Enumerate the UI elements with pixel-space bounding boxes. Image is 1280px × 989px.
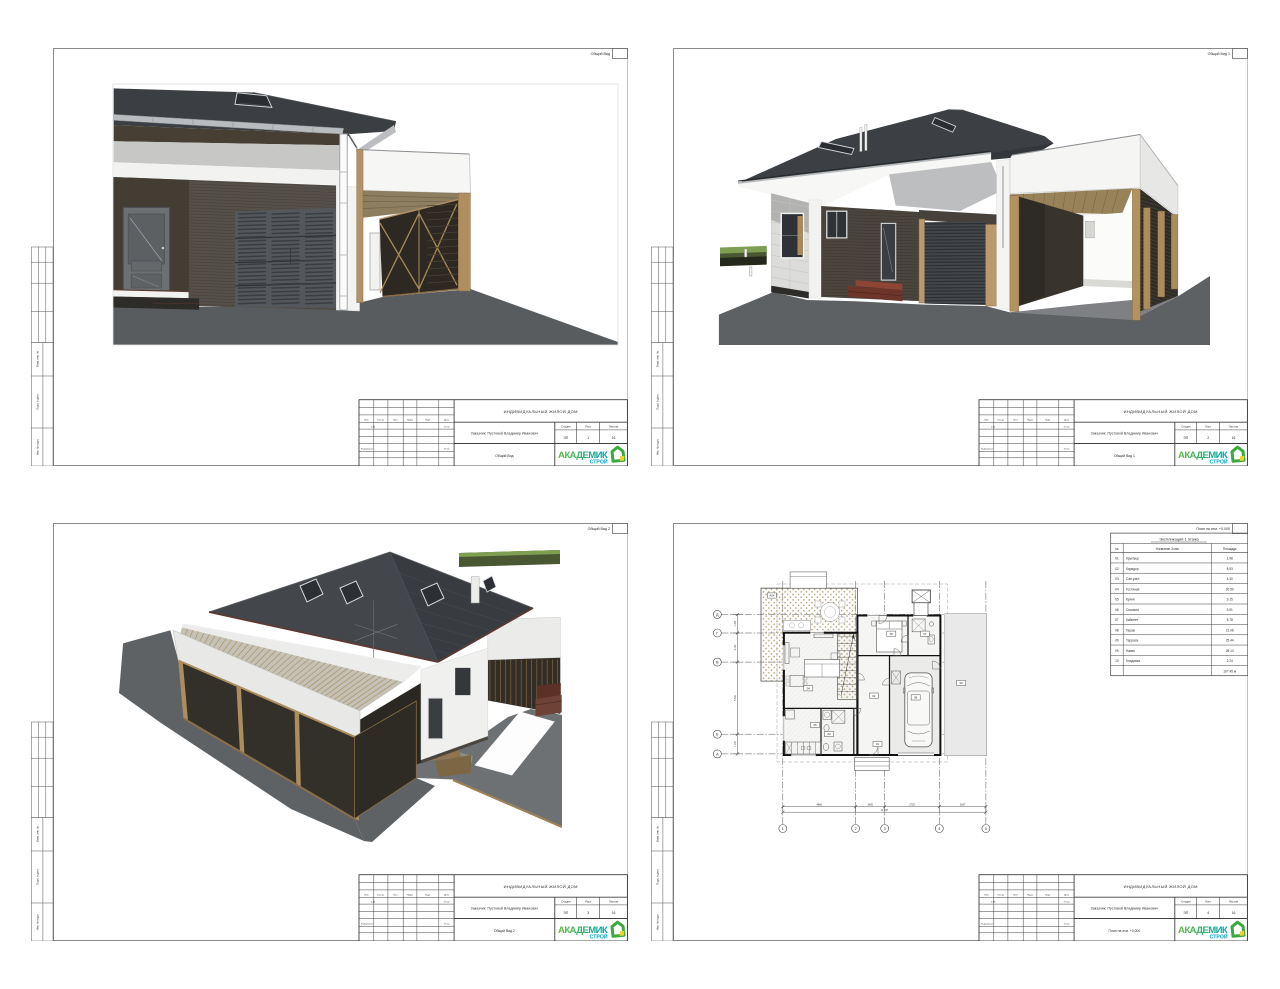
svg-text:Общий Вид 1: Общий Вид 1 [1114, 454, 1135, 458]
svg-text:Подп. и дата: Подп. и дата [656, 869, 660, 885]
svg-text:Изм: Изм [984, 895, 989, 897]
svg-text:Общий Вид 1: Общий Вид 1 [1208, 52, 1230, 56]
svg-text:9.15: 9.15 [1227, 598, 1233, 602]
svg-text:Подп. и дата: Подп. и дата [656, 394, 660, 410]
svg-text:27 мм: 27 мм [1064, 427, 1070, 429]
svg-text:Навес: Навес [1126, 649, 1136, 653]
svg-text:Подп.: Подп. [425, 895, 431, 897]
svg-text:27 мм: 27 мм [444, 448, 450, 450]
svg-text:СТРОЙ: СТРОЙ [1210, 932, 1228, 940]
svg-text:Общий Вид 2: Общий Вид 2 [588, 527, 610, 531]
svg-text:Заказчик: Пустовой Владимир Ив: Заказчик: Пустовой Владимир Иванович [1091, 907, 1159, 911]
svg-text:Название Зоны: Название Зоны [1156, 547, 1180, 551]
svg-text:16: 16 [612, 436, 616, 440]
svg-text:Взам. инв. №: Взам. инв. № [656, 351, 660, 367]
svg-text:Взам. инв. №: Взам. инв. № [36, 826, 40, 842]
svg-text:Крыльцо: Крыльцо [1126, 557, 1139, 561]
svg-text:Листов: Листов [609, 425, 619, 429]
svg-text:Подп. и дата: Подп. и дата [36, 869, 40, 885]
svg-text:Дата: Дата [1064, 420, 1070, 422]
svg-text:Лист: Лист [393, 420, 398, 422]
svg-text:СТРОЙ: СТРОЙ [1210, 457, 1228, 465]
svg-text:Общий Вид: Общий Вид [591, 52, 611, 56]
svg-text:27 мм: 27 мм [1064, 902, 1070, 904]
svg-text:Инв. № подл.: Инв. № подл. [656, 914, 660, 930]
svg-text:Инв. № подл.: Инв. № подл. [656, 439, 660, 455]
svg-text:09: 09 [1115, 649, 1119, 653]
svg-text:Стадия: Стадия [561, 425, 571, 429]
svg-text:21.06: 21.06 [1226, 628, 1234, 632]
svg-text:2.24: 2.24 [1227, 659, 1233, 663]
svg-text:Изм: Изм [364, 895, 369, 897]
svg-text:2725: 2725 [909, 804, 915, 807]
svg-text:Дата: Дата [1064, 895, 1070, 897]
svg-text:План на отм. +0.000: План на отм. +0.000 [1108, 929, 1140, 933]
svg-text:3: 3 [587, 911, 589, 915]
svg-text:03: 03 [827, 732, 831, 736]
svg-text:Стадия: Стадия [1181, 900, 1191, 904]
svg-text:5.78: 5.78 [1227, 618, 1233, 622]
svg-text:№док: №док [407, 894, 413, 897]
svg-text:4: 4 [1207, 911, 1209, 915]
svg-text:Гараж: Гараж [1126, 628, 1136, 632]
svg-text:ЭП: ЭП [563, 911, 568, 915]
svg-text:1.180: 1.180 [735, 620, 737, 626]
svg-text:ИНДИВИДУАЛЬНЫЙ ЖИЛОЙ ДОМ: ИНДИВИДУАЛЬНЫЙ ЖИЛОЙ ДОМ [1124, 409, 1198, 414]
svg-text:A04: A04 [769, 594, 774, 598]
svg-text:Инв. № подл.: Инв. № подл. [36, 914, 40, 930]
svg-text:16: 16 [1232, 436, 1236, 440]
svg-text:1.100: 1.100 [735, 740, 737, 746]
svg-text:Дата: Дата [444, 895, 450, 897]
svg-text:№док: №док [1027, 894, 1033, 897]
svg-text:Заказчик: Пустовой Владимир Ив: Заказчик: Пустовой Владимир Иванович [471, 907, 539, 911]
svg-text:3: 3 [884, 827, 886, 831]
svg-text:3167: 3167 [960, 804, 966, 807]
svg-text:Стадия: Стадия [1181, 425, 1191, 429]
svg-text:Взам. инв. №: Взам. инв. № [656, 826, 660, 842]
svg-text:04: 04 [807, 687, 811, 691]
svg-text:Кухня: Кухня [1126, 598, 1135, 602]
svg-text:ИНДИВИДУАЛЬНЫЙ ЖИЛОЙ ДОМ: ИНДИВИДУАЛЬНЫЙ ЖИЛОЙ ДОМ [1124, 884, 1198, 889]
svg-text:Коридор: Коридор [1126, 567, 1139, 571]
svg-text:28.13: 28.13 [1226, 649, 1234, 653]
svg-text:Лист: Лист [585, 425, 592, 429]
svg-text:Подп.: Подп. [1045, 895, 1051, 897]
svg-text:27 мм: 27 мм [444, 427, 450, 429]
svg-text:Кол.уч: Кол.уч [378, 895, 385, 897]
svg-text:План на отм. +0.000: План на отм. +0.000 [1196, 527, 1230, 531]
svg-text:03: 03 [1115, 577, 1119, 581]
svg-text:Лист: Лист [585, 900, 592, 904]
svg-text:Лист: Лист [393, 895, 398, 897]
svg-text:20.50: 20.50 [1226, 587, 1234, 591]
svg-text:ИНДИВИДУАЛЬНЫЙ ЖИЛОЙ ДОМ: ИНДИВИДУАЛЬНЫЙ ЖИЛОЙ ДОМ [504, 409, 578, 414]
svg-text:СТРОЙ: СТРОЙ [590, 932, 608, 940]
svg-text:06: 06 [1115, 608, 1119, 612]
svg-text:Стадия: Стадия [561, 900, 571, 904]
svg-text:07: 07 [923, 632, 927, 636]
svg-text:1405: 1405 [867, 804, 873, 807]
svg-text:9.91: 9.91 [1227, 608, 1233, 612]
svg-text:8.93: 8.93 [1227, 567, 1233, 571]
svg-text:Подп. и дата: Подп. и дата [36, 394, 40, 410]
svg-text:Лист: Лист [1205, 900, 1212, 904]
svg-text:ЭП: ЭП [1183, 436, 1188, 440]
svg-text:08: 08 [914, 696, 918, 700]
svg-text:Подп.: Подп. [1045, 420, 1051, 422]
svg-text:Кладовка: Кладовка [1126, 659, 1140, 663]
svg-text:Заказчик: Пустовой Владимир Ив: Заказчик: Пустовой Владимир Иванович [471, 432, 539, 436]
svg-text:Взам. инв. №: Взам. инв. № [36, 351, 40, 367]
svg-text:Кол.уч: Кол.уч [998, 420, 1005, 422]
svg-text:ИНДИВИДУАЛЬНЫЙ ЖИЛОЙ ДОМ: ИНДИВИДУАЛЬНЫЙ ЖИЛОЙ ДОМ [504, 884, 578, 889]
svg-text:25.44: 25.44 [1226, 639, 1234, 643]
svg-text:Подп.: Подп. [425, 420, 431, 422]
svg-text:Разработал: Разработал [981, 923, 994, 925]
svg-text:2.190: 2.190 [735, 644, 737, 650]
svg-text:ЭП: ЭП [1183, 911, 1188, 915]
svg-text:09: 09 [960, 681, 964, 685]
svg-text:Листов: Листов [1229, 425, 1239, 429]
svg-text:27 мм: 27 мм [444, 923, 450, 925]
svg-text:Площадь: Площадь [1223, 547, 1237, 551]
svg-text:Разработал: Разработал [361, 923, 374, 925]
svg-text:Терраса: Терраса [1126, 639, 1138, 643]
svg-text:107.45 м: 107.45 м [1223, 669, 1236, 673]
svg-text:Заказчик: Пустовой Владимир Ив: Заказчик: Пустовой Владимир Иванович [1091, 432, 1159, 436]
svg-text:07: 07 [1115, 618, 1119, 622]
svg-text:Листов: Листов [1229, 900, 1239, 904]
svg-text:1: 1 [587, 436, 589, 440]
svg-text:2: 2 [1207, 436, 1209, 440]
svg-text:10: 10 [1115, 659, 1119, 663]
svg-text:Сан.узел: Сан.узел [1126, 577, 1139, 581]
svg-text:1.98: 1.98 [1227, 557, 1233, 561]
svg-text:Г: Г [716, 631, 718, 635]
svg-text:01: 01 [1115, 557, 1119, 561]
svg-text:16: 16 [1232, 911, 1236, 915]
svg-text:5: 5 [985, 827, 987, 831]
svg-text:ЭП: ЭП [563, 436, 568, 440]
svg-text:Спальня: Спальня [1126, 608, 1139, 612]
svg-text:27 мм: 27 мм [444, 902, 450, 904]
svg-text:4.30: 4.30 [1227, 577, 1233, 581]
svg-text:Кол.уч: Кол.уч [378, 420, 385, 422]
svg-text:Экспликация 1 этажа: Экспликация 1 этажа [1159, 537, 1199, 542]
svg-text:08: 08 [1115, 628, 1119, 632]
svg-text:Инв. № подл.: Инв. № подл. [36, 439, 40, 455]
svg-text:02: 02 [872, 694, 876, 698]
svg-text:Изм: Изм [364, 420, 369, 422]
svg-text:Общий Вид 2: Общий Вид 2 [494, 929, 515, 933]
svg-text:16: 16 [612, 911, 616, 915]
svg-text:12 167: 12 167 [880, 809, 888, 812]
svg-text:Гостиная: Гостиная [1126, 587, 1140, 591]
svg-text:Лист: Лист [1205, 425, 1212, 429]
svg-text:09: 09 [1115, 639, 1119, 643]
svg-text:№: № [1115, 547, 1119, 551]
svg-text:2: 2 [855, 827, 857, 831]
svg-text:27 мм: 27 мм [1064, 448, 1070, 450]
svg-text:Общий Вид: Общий Вид [495, 454, 513, 458]
svg-text:№док: №док [407, 419, 413, 422]
svg-text:Лист: Лист [1013, 420, 1018, 422]
svg-text:05: 05 [813, 723, 817, 727]
svg-text:02: 02 [1115, 567, 1119, 571]
svg-text:01: 01 [876, 742, 880, 746]
svg-text:06: 06 [890, 632, 894, 636]
svg-text:Изм: Изм [984, 420, 989, 422]
svg-text:Лист: Лист [1013, 895, 1018, 897]
svg-text:27 мм: 27 мм [1064, 923, 1070, 925]
svg-text:Разработал: Разработал [981, 448, 994, 450]
svg-text:Дата: Дата [444, 420, 450, 422]
svg-text:04: 04 [1115, 587, 1119, 591]
svg-text:Кабинет: Кабинет [1126, 618, 1139, 622]
svg-text:4: 4 [938, 827, 940, 831]
svg-text:1: 1 [782, 827, 784, 831]
svg-text:Кол.уч: Кол.уч [998, 895, 1005, 897]
svg-text:№док: №док [1027, 419, 1033, 422]
svg-text:СТРОЙ: СТРОЙ [590, 457, 608, 465]
svg-text:5.390: 5.390 [735, 694, 737, 700]
svg-text:Разработал: Разработал [361, 448, 374, 450]
svg-text:Листов: Листов [609, 900, 619, 904]
svg-text:05: 05 [1115, 598, 1119, 602]
svg-text:4980: 4980 [816, 804, 822, 807]
